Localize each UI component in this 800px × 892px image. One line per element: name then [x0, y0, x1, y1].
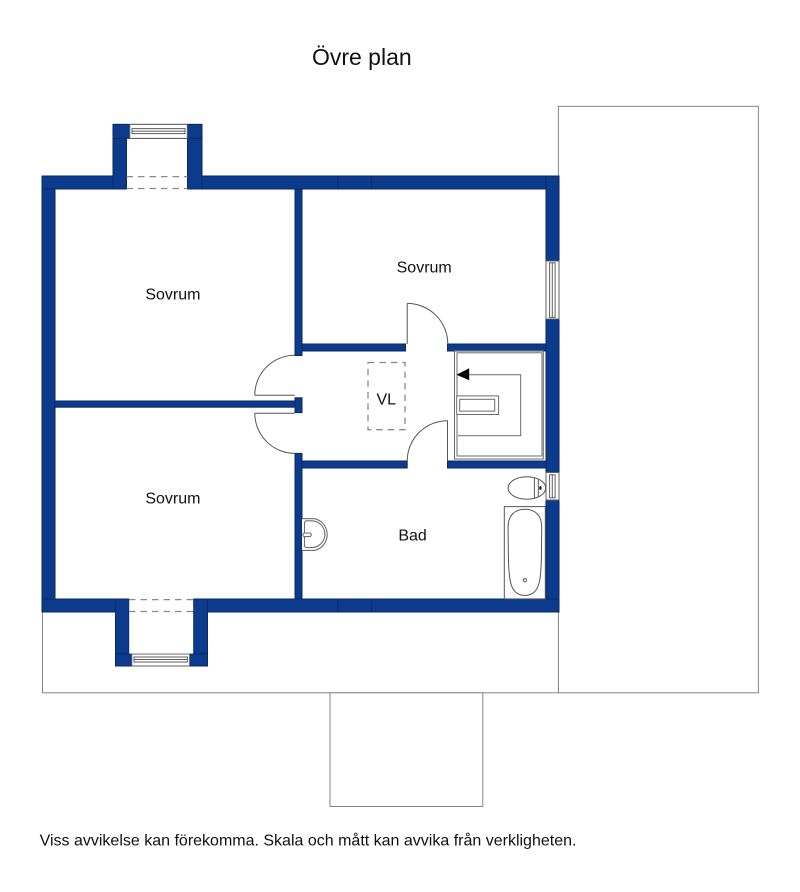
- svg-text:Övre plan: Övre plan: [312, 44, 412, 70]
- svg-text:Viss avvikelse kan förekomma.: Viss avvikelse kan förekomma. Skala och …: [40, 832, 577, 850]
- svg-text:Sovrum: Sovrum: [145, 490, 200, 507]
- svg-text:VL: VL: [377, 391, 397, 408]
- svg-text:Sovrum: Sovrum: [145, 286, 200, 303]
- svg-text:Bad: Bad: [398, 527, 426, 544]
- svg-text:Sovrum: Sovrum: [397, 259, 452, 276]
